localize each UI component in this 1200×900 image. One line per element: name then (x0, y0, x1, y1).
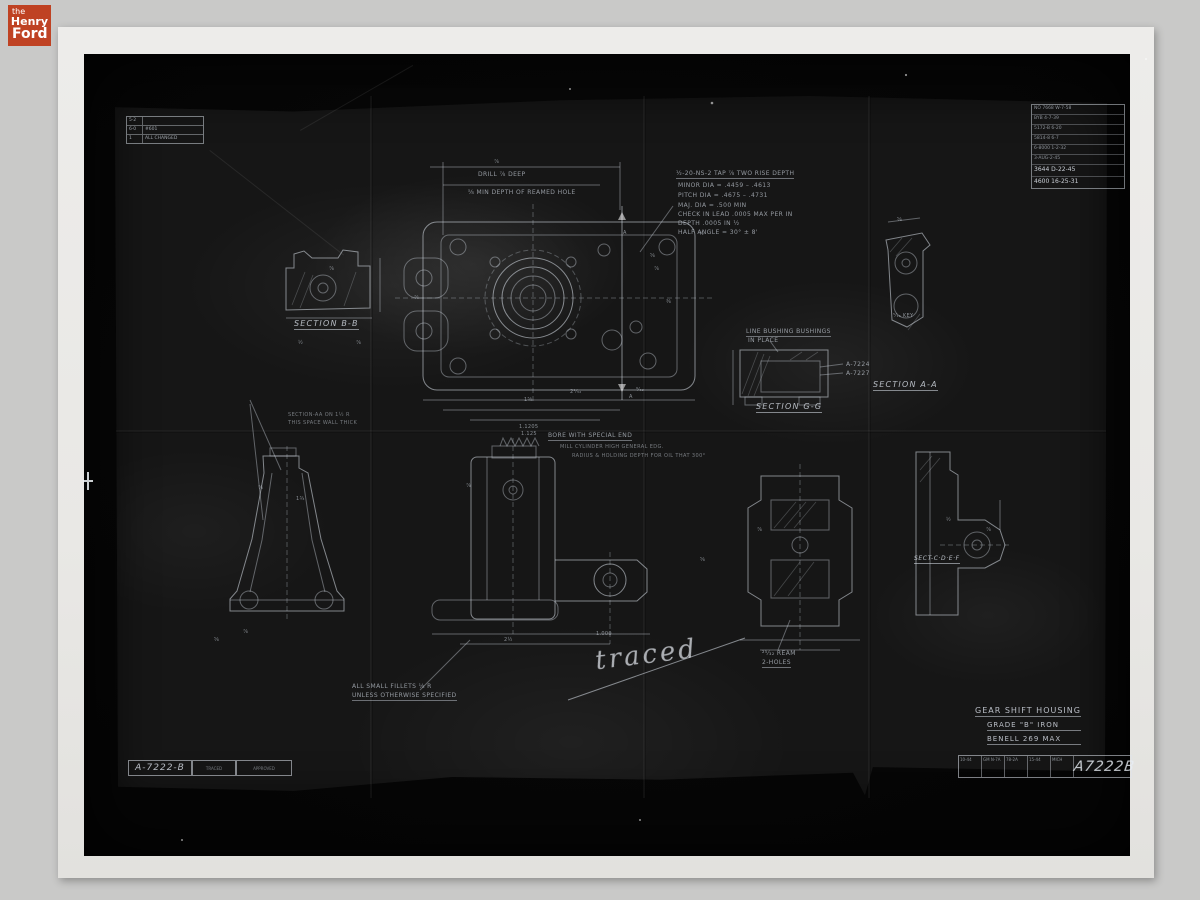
note-thread-spec-3: PITCH DIA = .4675 – .4731 (678, 192, 768, 199)
note-thread-spec-1: ½-20-NS-2 TAP ⅞ TWO RISE DEPTH (676, 170, 794, 179)
note-mill: MILL CYLINDER HIGH GENERAL EDG. (560, 444, 664, 450)
note-left-1: SECTION-AA ON 1½ R (288, 412, 350, 418)
note-oil: RADIUS & HOLDING DEPTH FOR OIL THAT 300° (572, 453, 706, 459)
table-cell: 5·2 (127, 117, 142, 125)
drawing-number: A7222B (1073, 759, 1136, 775)
strip-cell: 15-44 (1028, 756, 1051, 777)
dimension-label: ⅜ (666, 299, 671, 305)
table-cell: 6·0 (127, 126, 142, 134)
dimension-label: ½ (946, 517, 951, 523)
hardness-spec: BENELL 269 MAX (987, 735, 1081, 745)
strip-cell: MICH (1051, 756, 1074, 777)
strip-cell: TRACED (192, 760, 236, 776)
note-ream-holes-2: 2-HOLES (762, 659, 791, 668)
note-left-2: THIS SPACE WALL THICK (288, 420, 357, 426)
ref-a7227: A-7227 (846, 370, 870, 377)
strip-cell: 10-44 (959, 756, 982, 777)
table-row: BYB 4-7-39 (1032, 114, 1124, 124)
revision-table-top-left: 5·2 6·0 #601 1 ALL CHANGED (126, 116, 204, 144)
note-fillets-1: ALL SMALL FILLETS ⅛ R (352, 683, 432, 690)
dimension-label: ⅝ (897, 217, 902, 223)
table-row: NO 7668 W-7-58 (1032, 105, 1124, 114)
detail-view-cdef (916, 452, 1012, 615)
dimension-label: ⅝ (650, 253, 655, 259)
dimension-label: 1⅝ (524, 397, 533, 403)
dimension-label: 1.1205 (519, 424, 538, 430)
front-elevation-view (230, 400, 344, 622)
note-thread-spec-2: MINOR DIA = .4459 – .4613 (678, 182, 771, 189)
note-thread-spec-7: HALF ANGLE = 30° ± 8' (678, 229, 758, 236)
dimension-label: ⁹⁄₃₂ (636, 387, 644, 393)
dimension-label: ⅞ (494, 159, 499, 165)
note-thread-spec-4: MAJ. DIA = .500 MIN (678, 202, 747, 209)
note-drill: DRILL ⅞ DEEP (478, 171, 526, 178)
note-ream-depth: ⅝ MIN DEPTH OF REAMED HOLE (468, 189, 576, 196)
dimension-label: ⅞ (258, 485, 263, 491)
material-grade: GRADE "B" IRON (987, 721, 1081, 731)
main-plan-view (395, 162, 712, 420)
dimension-label: ⅞ (414, 295, 419, 301)
dimension-label: ⁵⁄₁₆ KEY (893, 313, 913, 319)
table-row: 3-AUG-2-45 (1032, 154, 1124, 164)
title-block: GEAR SHIFT HOUSING GRADE "B" IRON BENELL… (975, 706, 1081, 749)
table-row: 4600 16-25-31 (1032, 176, 1124, 188)
table-row: 3644 D-22-45 (1032, 164, 1124, 176)
logo-text-ford: Ford (12, 26, 48, 42)
side-elevation-view (432, 438, 650, 644)
dimension-label: ⅞ (329, 266, 334, 272)
dimension-label: ⅞ (654, 266, 659, 272)
ref-a7224: A-7224 (846, 361, 870, 368)
drawing-number-bl: A-7222-B (128, 760, 192, 776)
drawing-number-cell: A7222B (1074, 756, 1135, 777)
table-row: 1 ALL CHANGED (127, 134, 203, 143)
drawing-title: GEAR SHIFT HOUSING (975, 706, 1081, 717)
dimension-label: 1¾ (296, 496, 305, 502)
note-ream-holes-1: ²⁵⁄₃₂ REAM (762, 650, 796, 657)
section-aa-label: SECTION A-A (873, 380, 938, 391)
scan-background: ⅞⅝⅞⅜½AA⅞2¹⁄₃₂1⅝⁹⁄₃₂⅝⅞½⅞1.12051.125⅞1¾⅞2½… (0, 0, 1200, 900)
note-thread-spec-6: DEPTH .0005 IN ½ (678, 220, 740, 227)
note-bushing-2: IN PLACE (748, 337, 778, 344)
table-row: 6·0 #601 (127, 125, 203, 134)
section-gg-label: SECTION G-G (756, 402, 822, 413)
dimension-label: A (629, 394, 633, 400)
title-strip-bottom-right: 10-44 GM N-7A 78-2A 15-44 MICH A7222B (958, 755, 1132, 778)
strip-cell: APPROVED (236, 760, 292, 776)
dimension-label: 2¹⁄₃₂ (570, 389, 582, 395)
table-row: 5·2 (127, 117, 203, 125)
dimension-label: ⅞ (243, 629, 248, 635)
dimension-label: 1.000 (596, 631, 612, 637)
dimension-label: 2½ (504, 637, 513, 643)
section-bb-label: SECTION B-B (294, 319, 359, 330)
dimension-label: 1.125 (521, 431, 537, 437)
strip-cell: 78-2A (1005, 756, 1028, 777)
table-row: 5814-8 6-7 (1032, 134, 1124, 144)
dimension-label: ⅞ (466, 483, 471, 489)
table-cell: 1 (127, 135, 142, 143)
dimension-label: ⅞ (356, 340, 361, 346)
revision-table-top-right: NO 7668 W-7-58 BYB 4-7-39 5172-B 6-20 58… (1031, 104, 1125, 189)
dimension-label: ⅞ (986, 527, 991, 533)
section-gg-view (733, 341, 843, 405)
table-row: 6-8000 1-2-32 (1032, 144, 1124, 154)
table-cell (142, 117, 203, 125)
dimension-label: ½ (298, 340, 303, 346)
dimension-label: ⅝ (214, 637, 219, 643)
dimension-label: ⅝ (700, 557, 705, 563)
note-bore: BORE WITH SPECIAL END (548, 432, 632, 441)
dimension-label: ⅞ (757, 527, 762, 533)
cross-section-view (740, 464, 860, 650)
note-thread-spec-5: CHECK IN LEAD .0005 MAX PER IN (678, 211, 793, 218)
section-cdef-label: SECT-C·D·E·F (914, 555, 960, 564)
henry-ford-logo: the Henry Ford (8, 5, 51, 46)
section-bb-view (286, 250, 380, 318)
table-row: 5172-B 6-20 (1032, 124, 1124, 134)
note-fillets-2: UNLESS OTHERWISE SPECIFIED (352, 692, 457, 701)
dimension-label: A (623, 230, 627, 236)
corner-block-bottom-left: A-7222-B TRACED APPROVED (128, 760, 292, 776)
table-cell: ALL CHANGED (142, 135, 203, 143)
note-bushing-1: LINE BUSHING BUSHINGS (746, 328, 831, 337)
strip-cell: GM N-7A (982, 756, 1005, 777)
table-cell: #601 (142, 126, 203, 134)
